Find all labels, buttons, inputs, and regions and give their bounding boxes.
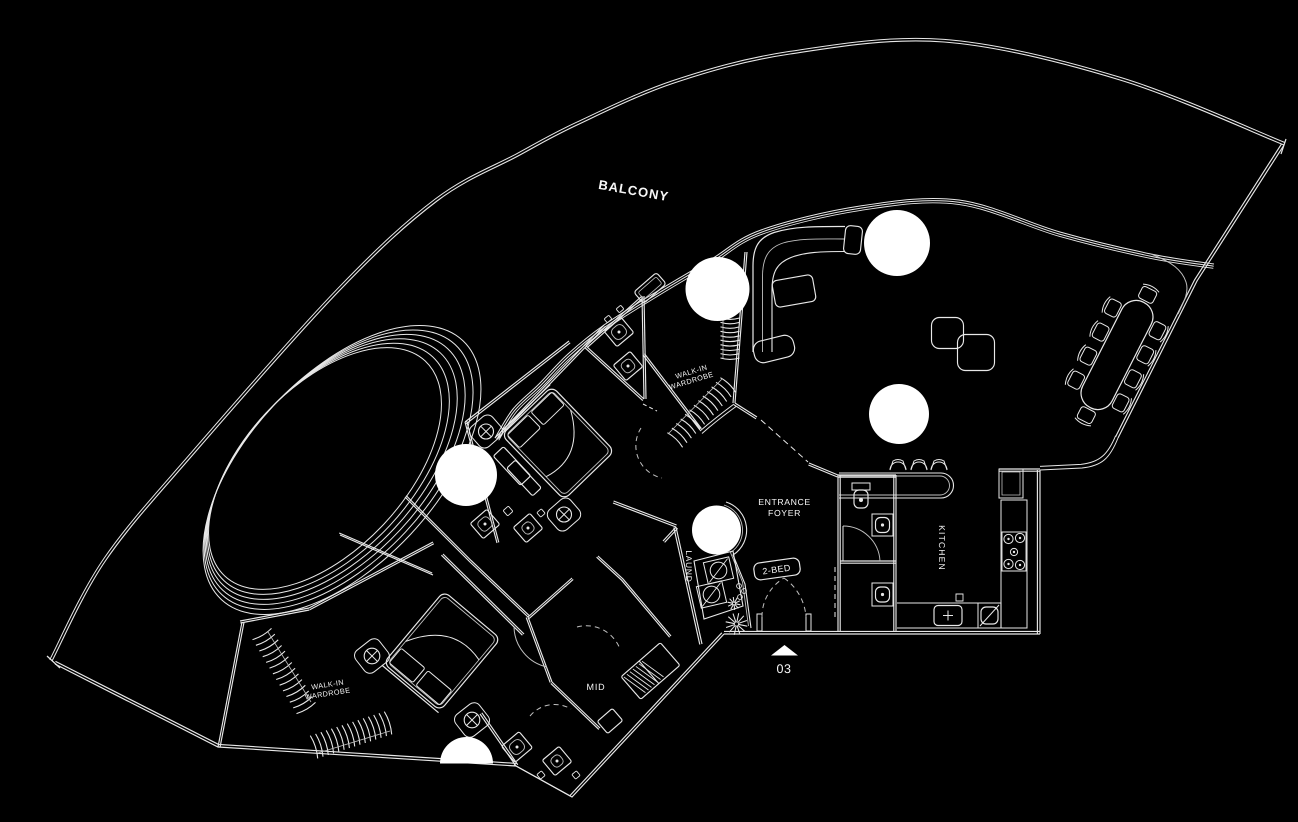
svg-text:MID: MID <box>587 682 606 692</box>
svg-text:03: 03 <box>777 662 792 676</box>
svg-text:KITCHEN: KITCHEN <box>937 525 947 571</box>
svg-text:LAUND.: LAUND. <box>684 550 694 585</box>
svg-text:ENTRANCE: ENTRANCE <box>758 497 811 507</box>
svg-text:FOYER: FOYER <box>768 508 801 518</box>
